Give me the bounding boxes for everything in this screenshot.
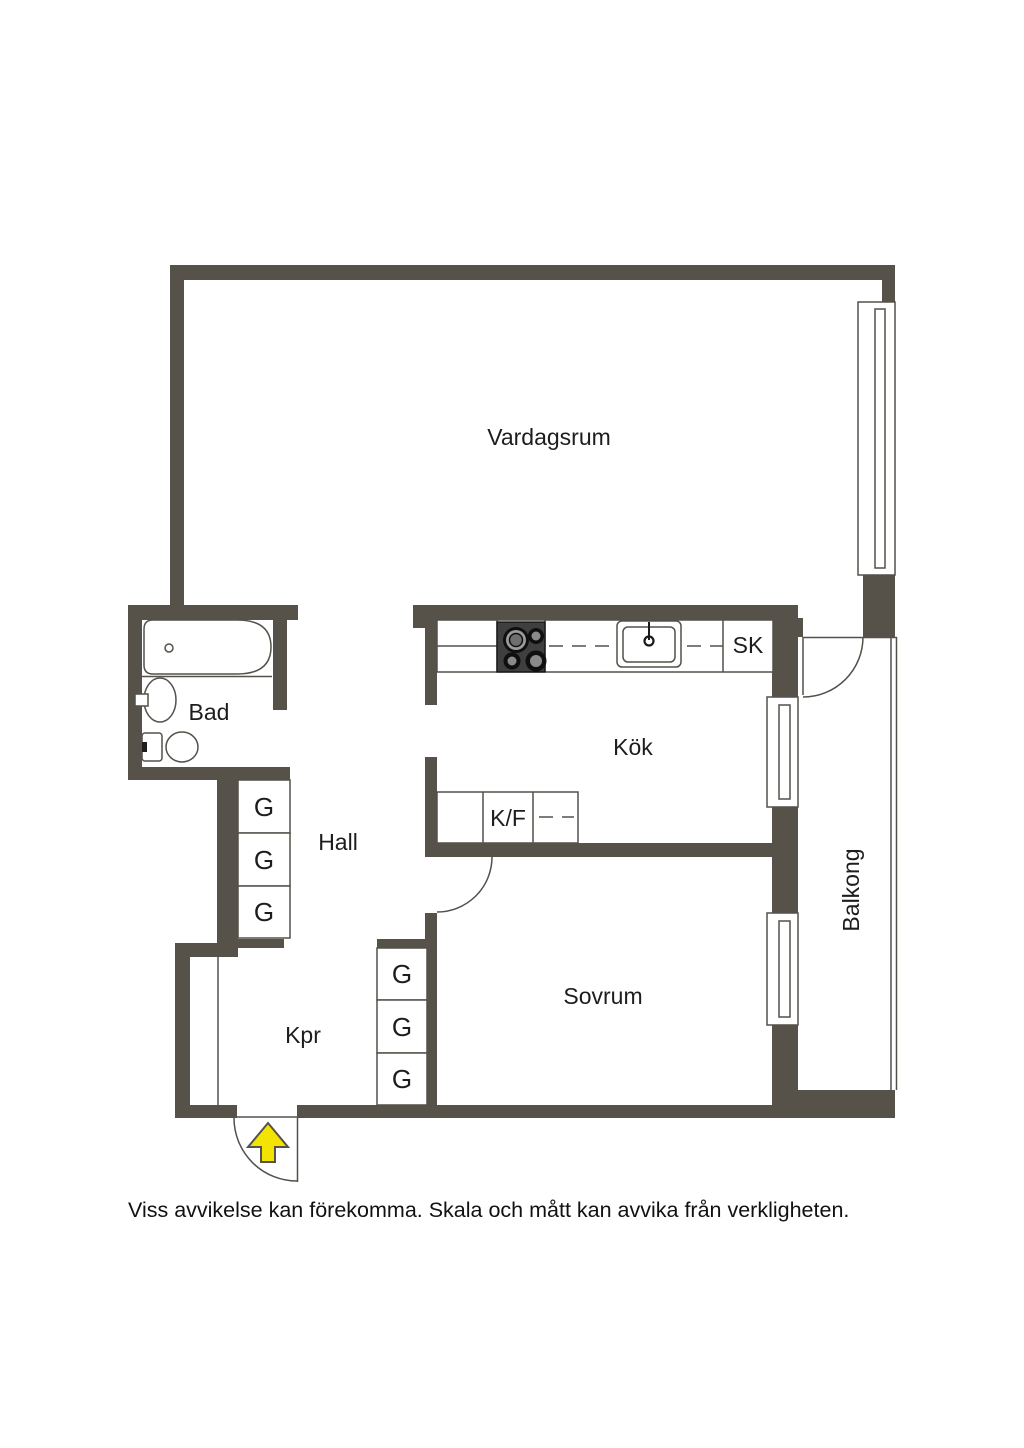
- room-label-kitchen: Kök: [613, 734, 653, 760]
- wall-segment: [413, 620, 425, 628]
- bedroom-door: [437, 857, 492, 912]
- stove-icon: [497, 622, 547, 672]
- wall-segment: [128, 605, 298, 620]
- floor-plan-drawing: Vardagsrum Bad Kök SK K/F Hall Kpr Sovru…: [0, 0, 1024, 1448]
- wall-segment: [175, 943, 190, 1118]
- closet-label-sk: SK: [733, 632, 764, 658]
- wall-segment: [170, 280, 184, 605]
- wall-segment: [797, 1090, 895, 1118]
- wardrobe-label: G: [254, 792, 274, 822]
- wall-segment: [437, 843, 798, 857]
- wall-segment: [772, 857, 798, 913]
- wall-segment: [882, 280, 895, 302]
- room-label-living-room: Vardagsrum: [487, 424, 611, 450]
- wall-segment: [772, 807, 798, 843]
- wardrobe-label: G: [254, 845, 274, 875]
- entrance-arrow-icon: [248, 1123, 288, 1162]
- wall-segment: [425, 757, 437, 857]
- wall-segment: [128, 767, 290, 780]
- wall-segment: [273, 620, 287, 710]
- bedroom-window: [767, 913, 798, 1025]
- bathtub-icon: [142, 620, 272, 677]
- wardrobe-label: G: [392, 1064, 412, 1094]
- room-label-bedroom: Sovrum: [563, 983, 642, 1009]
- wall-segment: [772, 1025, 798, 1105]
- kitchen-counter: [437, 620, 773, 672]
- room-label-bathroom: Bad: [189, 699, 230, 725]
- disclaimer-text: Viss avvikelse kan förekomma. Skala och …: [128, 1198, 849, 1222]
- wall-segment: [238, 939, 284, 948]
- toilet-icon: [142, 732, 198, 762]
- wall-segment: [772, 618, 803, 637]
- room-label-closet-room: Kpr: [285, 1022, 321, 1048]
- wall-segment: [377, 939, 425, 948]
- fridge-freezer-label: K/F: [490, 805, 526, 831]
- living-room-window: [858, 302, 895, 575]
- floor-plan: Vardagsrum Bad Kök SK K/F Hall Kpr Sovru…: [0, 0, 1024, 1448]
- wall-segment: [425, 620, 437, 705]
- kitchen-window: [767, 697, 798, 807]
- kitchen-sink-icon: [617, 621, 681, 667]
- wall-segment: [175, 1105, 237, 1118]
- room-label-balcony: Balkong: [838, 848, 864, 931]
- wardrobe-label: G: [392, 1012, 412, 1042]
- wall-segment: [413, 605, 798, 620]
- wall-segment: [863, 575, 895, 637]
- room-label-hall: Hall: [318, 829, 358, 855]
- wall-segment: [217, 780, 238, 957]
- wardrobe-label: G: [392, 959, 412, 989]
- wall-segment: [170, 265, 895, 280]
- wardrobe-label: G: [254, 897, 274, 927]
- balcony-door: [803, 637, 863, 697]
